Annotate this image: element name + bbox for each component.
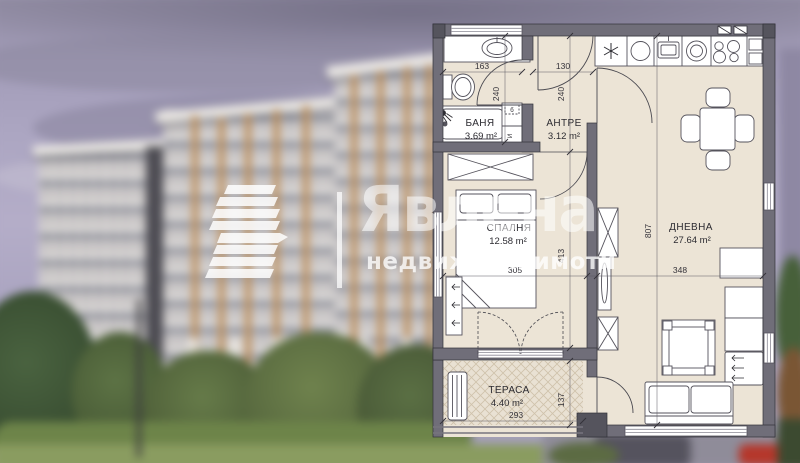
armchair xyxy=(725,352,763,385)
dim-terrace-width: 293 xyxy=(509,410,523,420)
dresser xyxy=(446,277,462,335)
dim-living-depth: 807 xyxy=(643,224,653,238)
watermark-tagline: недвижими имоти xyxy=(366,251,616,274)
yavlena-logo-icon xyxy=(204,185,292,283)
kitchen-counter xyxy=(595,36,763,66)
wall-corner-block xyxy=(433,24,445,38)
room-area-living: 27.64 m² xyxy=(673,235,711,246)
room-label-bathroom: БАНЯ xyxy=(465,118,494,129)
room-area-bathroom: 3.69 m² xyxy=(465,131,497,142)
washer-drum-icon xyxy=(631,42,650,61)
dim-bath-depth: 240 xyxy=(491,87,501,101)
coffee-table xyxy=(662,320,715,375)
dim-entrance-door: 130 xyxy=(556,61,570,71)
watermark-divider xyxy=(337,192,342,288)
lawn xyxy=(0,444,573,463)
sofa-cushion xyxy=(649,386,689,413)
dim-terrace-depth: 137 xyxy=(556,393,566,407)
room-label-hall: АНТРЕ xyxy=(546,118,581,129)
room-label-living: ДНЕВНА xyxy=(669,222,713,233)
dining-table xyxy=(700,108,735,150)
dim-bath-width: 163 xyxy=(475,61,489,71)
cabinet xyxy=(749,39,762,50)
window-living-right-1 xyxy=(764,183,774,210)
chair xyxy=(681,115,701,142)
room-area-hall: 3.12 m² xyxy=(548,131,580,142)
radiator xyxy=(448,372,467,420)
washer-label-top: б xyxy=(510,108,514,114)
french-door-sill xyxy=(478,350,563,358)
cabinet xyxy=(725,318,763,351)
sofa-cushion xyxy=(691,386,731,413)
toilet-tank xyxy=(443,75,452,99)
wall-right xyxy=(763,24,775,437)
window-living-right-2 xyxy=(764,333,774,363)
wall-terrace-left xyxy=(433,360,443,437)
wall-bath-jamb xyxy=(522,36,533,60)
wall-corner-block xyxy=(763,24,775,38)
lamp-post xyxy=(137,299,141,457)
dim-living-width: 348 xyxy=(673,265,687,275)
chair xyxy=(734,115,754,142)
cabinet xyxy=(749,53,762,64)
cabinet xyxy=(725,287,763,318)
cabinet xyxy=(720,248,763,278)
window-living-bottom xyxy=(625,426,747,436)
tree xyxy=(777,419,800,463)
window-bathroom-top xyxy=(451,25,522,35)
watermark-brand: Явлена xyxy=(358,178,597,241)
bush xyxy=(548,442,619,463)
chair xyxy=(706,88,730,107)
room-area-terrace: 4.40 m² xyxy=(491,398,523,409)
wall-bath-bottom xyxy=(433,142,540,152)
listing-image: БАНЯ 3.69 m² АНТРЕ 3.12 m² СПАЛНЯ 12.58 … xyxy=(0,0,800,463)
chair xyxy=(706,151,730,170)
room-label-terrace: ТЕРАСА xyxy=(488,385,529,396)
washer-label-side: И xyxy=(508,134,514,138)
dim-hall-depth: 240 xyxy=(556,87,566,101)
